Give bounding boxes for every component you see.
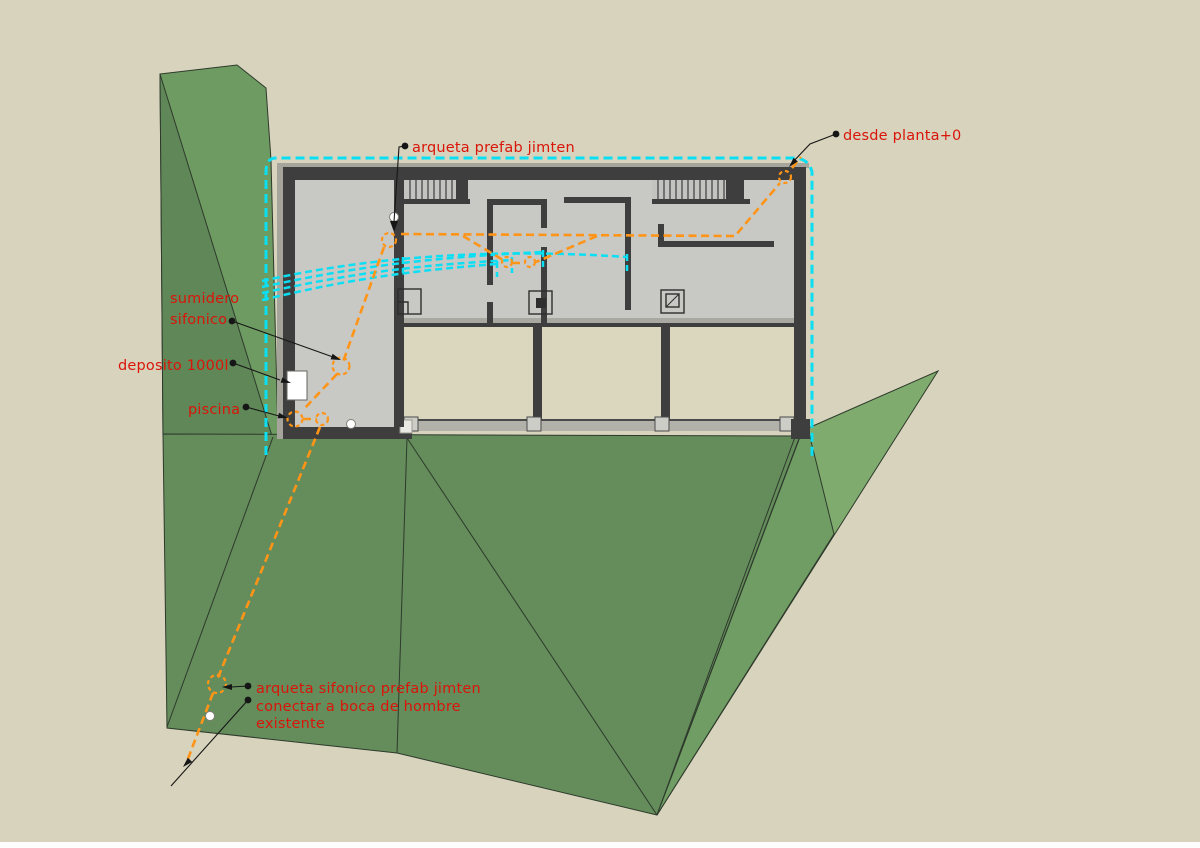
leader-dot (229, 318, 236, 325)
leader-dot (245, 697, 252, 704)
band-sill-dark (404, 323, 794, 327)
stairs-left (404, 179, 470, 204)
label-desde-planta: desde planta+0 (843, 128, 961, 144)
band-rail-edge (404, 419, 794, 421)
wall-bottom-piscina (283, 427, 412, 439)
stairs-right (652, 176, 750, 204)
bottom-strip (0, 842, 1200, 848)
stairs-right-landing-wall (726, 176, 744, 202)
label-arqueta-prefab: arqueta prefab jimten (412, 140, 575, 156)
label-sumidero-line1: sumidero (170, 291, 239, 307)
partition-wall (541, 205, 547, 228)
partition-wall (487, 302, 493, 326)
band-mullion (661, 327, 670, 419)
endpoint-dot (206, 712, 215, 721)
partition-wall (487, 199, 547, 205)
leader-dot (230, 360, 237, 367)
deposito-1000l-box (287, 371, 307, 400)
plan-drawing: arqueta prefab jimten desde planta+0 sum… (0, 0, 1200, 848)
band-panels (404, 327, 794, 419)
wall-right (794, 167, 806, 432)
leader-dot (833, 131, 840, 138)
wall-corner-block (791, 419, 810, 439)
drain-fixture-core (536, 298, 546, 308)
model-viewport: arqueta prefab jimten desde planta+0 sum… (0, 0, 1200, 848)
label-arqueta-sifonico: arqueta sifonico prefab jimten (256, 681, 481, 697)
label-conectar-line2: existente (256, 716, 325, 732)
column-base (527, 417, 541, 431)
band-sill-light (404, 318, 794, 323)
leader-dot (402, 143, 409, 150)
stairs-left-tread-area (404, 180, 457, 199)
wall-left-highlight (277, 167, 284, 439)
label-sumidero-line2: sifonico (170, 312, 227, 328)
partition-wall (487, 199, 493, 285)
label-piscina: piscina (188, 402, 240, 418)
partition-wall (658, 241, 774, 247)
leader-dot (245, 683, 252, 690)
partition-wall (564, 197, 631, 203)
endpoint-dot (347, 420, 356, 429)
stairs-right-rail (652, 199, 750, 204)
column-base (655, 417, 669, 431)
leader-dot (243, 404, 250, 411)
band-mullion (533, 327, 542, 419)
label-conectar-line1: conectar a boca de hombre (256, 699, 461, 715)
stairs-left-landing-wall (456, 179, 468, 204)
building (277, 163, 810, 439)
label-deposito: deposito 1000l (118, 358, 229, 374)
